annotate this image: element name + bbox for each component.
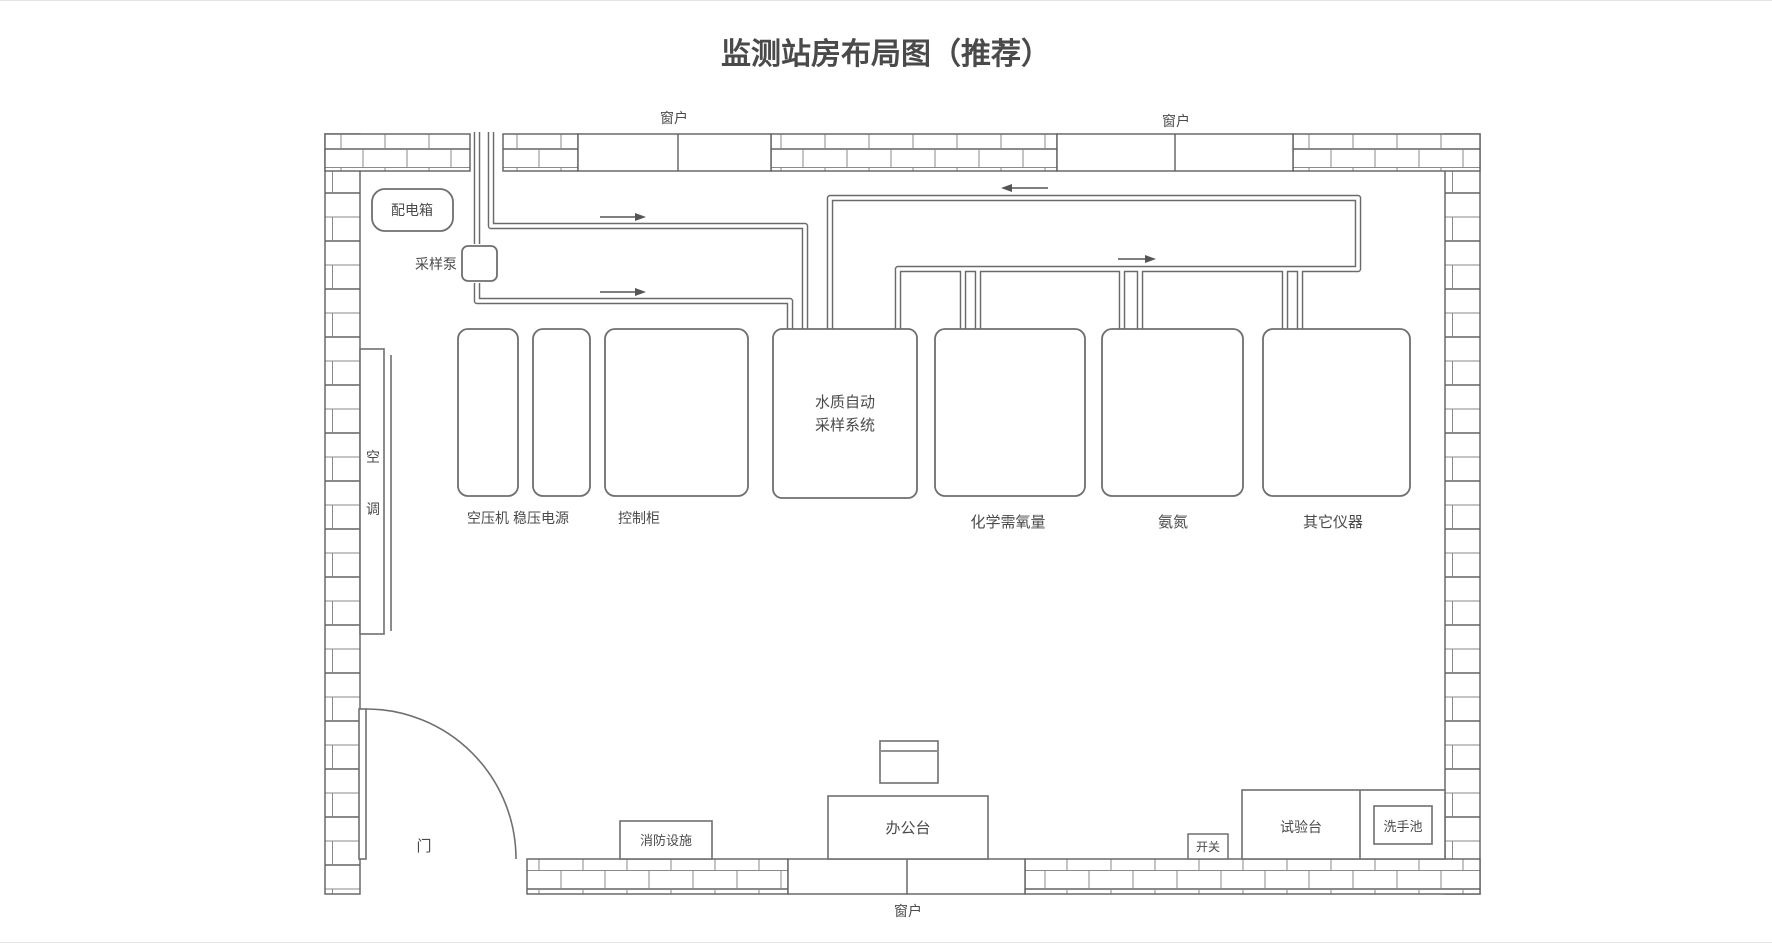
office-desk-label: 办公台 [885,820,930,837]
air-conditioner [360,349,391,634]
window-top-left [578,134,771,171]
pipe-branch-stubs [963,269,1300,332]
fire-equipment-label: 消防设施 [640,833,692,848]
wall-top-segment [325,134,470,171]
cod-analyzer-label: 化学需氧量 [970,514,1045,531]
wall-left [325,134,360,894]
water-sampling-system-label-line1: 水质自动 [815,394,875,411]
equipment-row [458,329,1410,498]
flow-arrowhead-icon [635,288,646,296]
control-cabinet-label: 控制柜 [618,510,660,526]
floor-plan-page: 监测站房布局图（推荐） [0,0,1772,943]
control-cabinet-box [605,329,748,496]
voltage-stabilizer-box [533,329,590,496]
wall-top-segment [771,134,1057,171]
sampling-pump-label: 采样泵 [415,256,457,272]
other-instruments-label: 其它仪器 [1303,513,1363,531]
test-bench-label: 试验台 [1280,819,1322,835]
flow-arrowhead-icon [1001,184,1012,192]
pipe-distribution-loop-core [830,198,1358,332]
page-title: 监测站房布局图（推荐） [721,37,1051,71]
air-conditioner-label-line1: 空 [366,449,380,465]
window-top-right-label: 窗户 [1162,113,1190,129]
wall-bottom-segment [1025,859,1480,894]
distribution-box-label: 配电箱 [391,202,433,218]
air-conditioner-label-line2: 调 [366,501,380,517]
pipe-branch-stubs-core [963,269,1300,332]
furniture [620,741,1445,859]
window-bottom-label: 窗户 [894,903,922,919]
pipe-distribution-loop [830,198,1358,332]
wall-top-segment [503,134,578,171]
air-compressor-label: 空压机 [467,510,509,526]
other-instruments-box [1263,329,1410,496]
window-top-left-label: 窗户 [660,110,688,126]
water-sampling-system-label-line2: 采样系统 [815,417,875,434]
switch-label: 开关 [1196,840,1220,854]
door-leaf [359,709,366,859]
air-conditioner-box [360,349,384,634]
door [359,709,516,859]
sampling-pump [462,246,497,281]
wall-right [1445,134,1480,894]
air-compressor-box [458,329,518,496]
flow-arrowhead-icon [1145,255,1156,263]
chair [880,741,938,783]
wall-top-segment [1293,134,1480,171]
floor-plan-diagram: 监测站房布局图（推荐） [0,1,1772,943]
voltage-stabilizer-label: 稳压电源 [513,510,569,526]
sink-label: 洗手池 [1383,819,1422,834]
door-label: 门 [416,838,431,855]
water-sampling-system-box [773,329,917,498]
door-swing-arc [366,709,516,859]
cod-analyzer-box [935,329,1085,496]
wall-bottom-segment [527,859,788,894]
ammonia-analyzer-label: 氨氮 [1158,514,1188,531]
ammonia-analyzer-box [1102,329,1243,496]
flow-arrowhead-icon [635,213,646,221]
